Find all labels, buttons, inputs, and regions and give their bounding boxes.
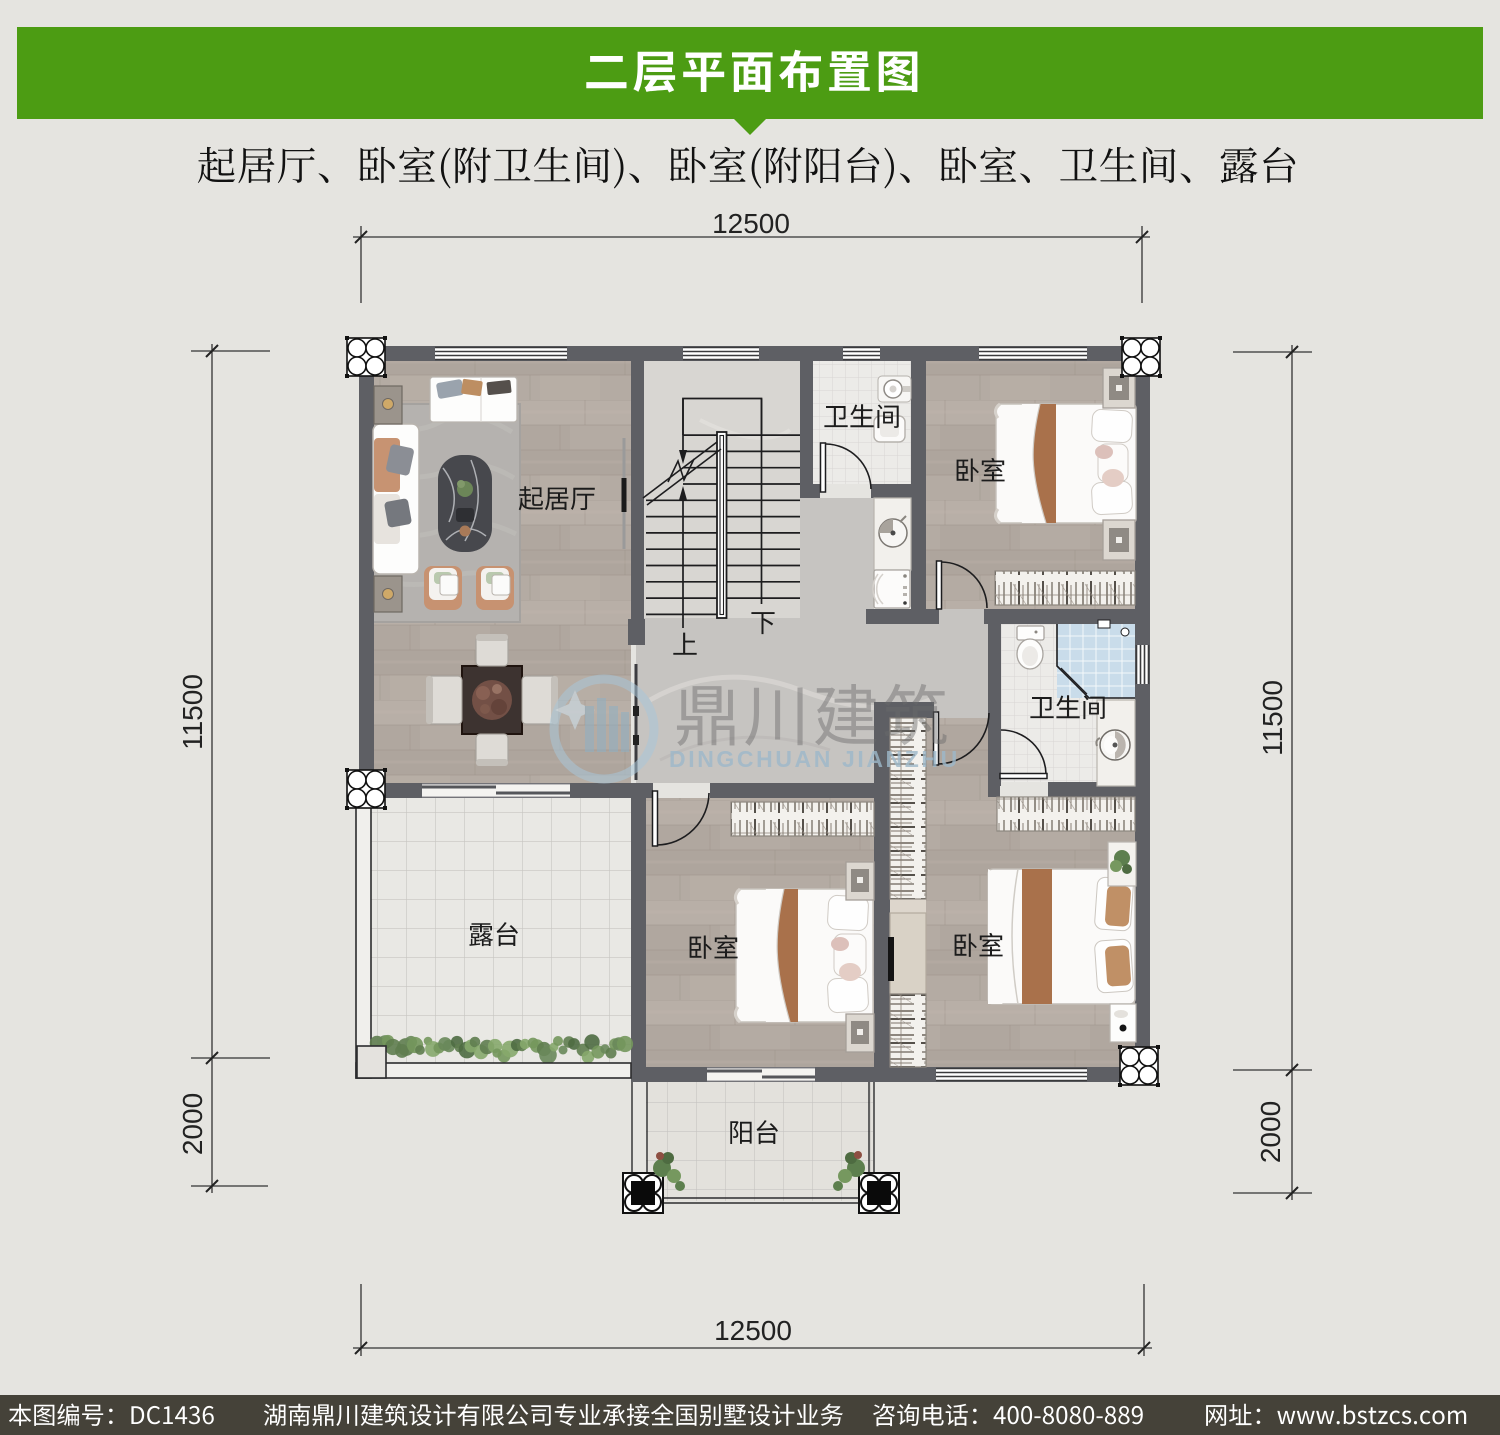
svg-text:11500: 11500 [177,674,208,750]
svg-text:DINGCHUAN JIANZHU: DINGCHUAN JIANZHU [669,746,960,772]
svg-text:11500: 11500 [1257,680,1288,756]
svg-text:2000: 2000 [1255,1101,1286,1163]
svg-text:2000: 2000 [177,1093,208,1155]
svg-text:12500: 12500 [714,1315,792,1346]
svg-text:12500: 12500 [712,208,790,239]
